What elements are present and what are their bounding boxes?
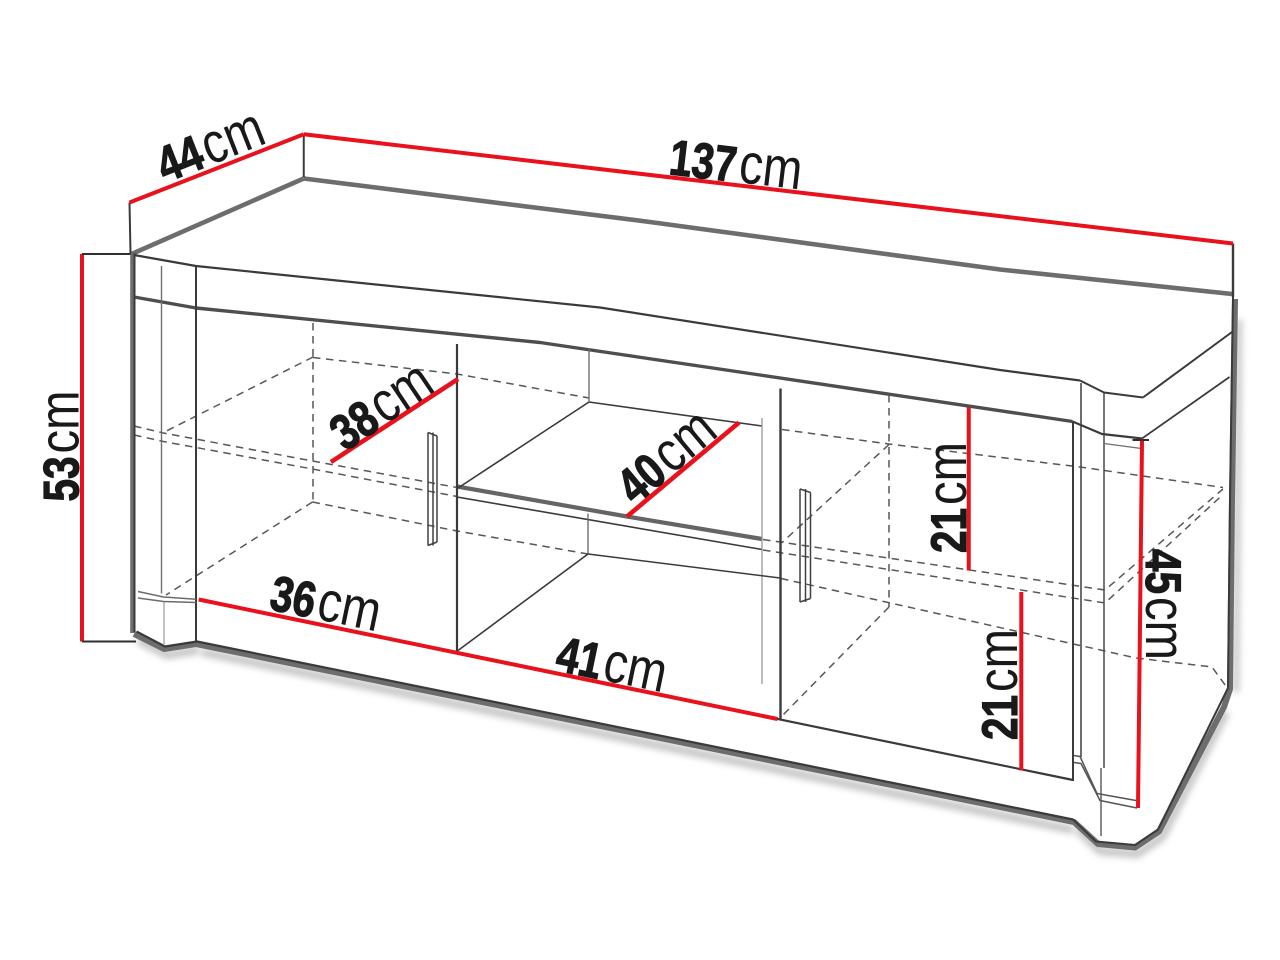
svg-text:45cm: 45cm (1133, 549, 1197, 660)
svg-text:21cm: 21cm (966, 629, 1030, 740)
svg-text:53cm: 53cm (28, 391, 92, 502)
svg-text:21cm: 21cm (915, 442, 979, 553)
